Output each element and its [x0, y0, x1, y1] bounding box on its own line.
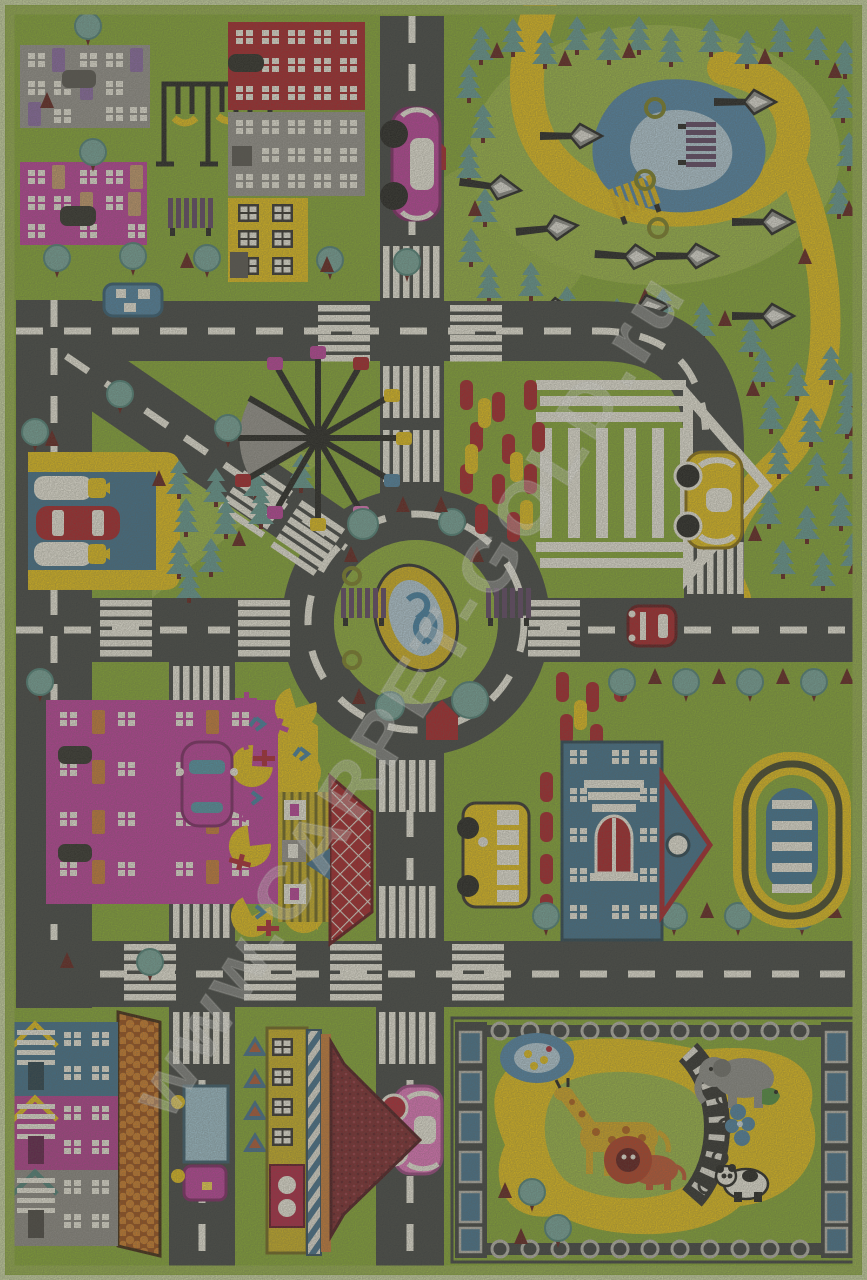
carpet-texture-overlay — [0, 0, 867, 1280]
play-rug-photo: www.CARPET-GOLD.ru — [0, 0, 867, 1280]
